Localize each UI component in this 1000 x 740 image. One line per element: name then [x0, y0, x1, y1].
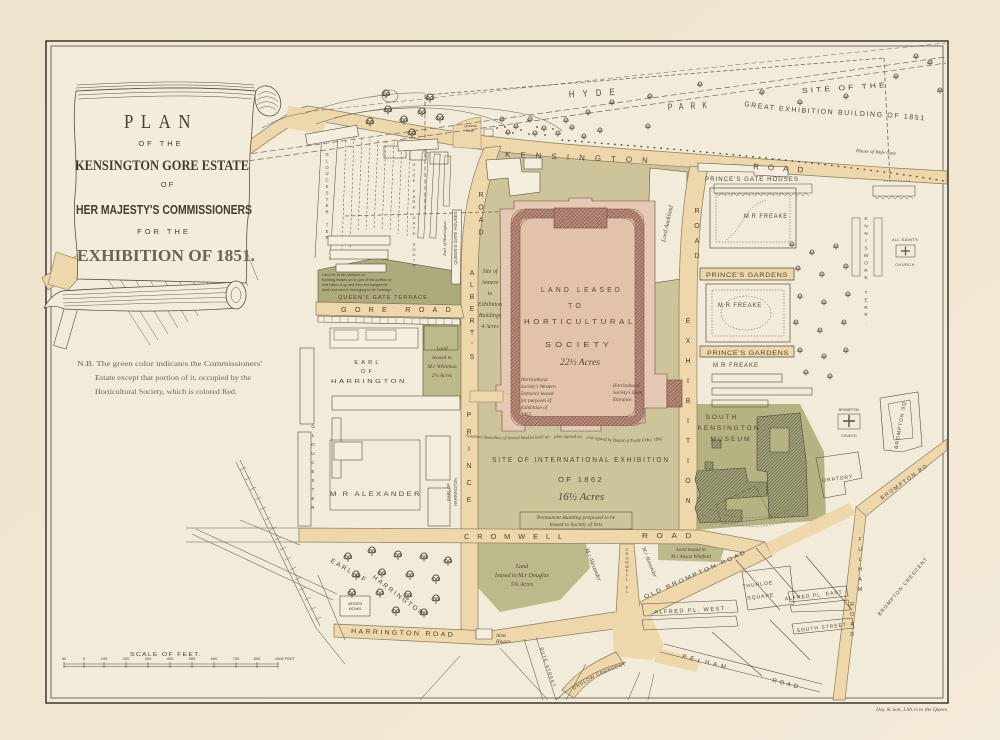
svg-text:PRINCE'S GARDENS: PRINCE'S GARDENS: [706, 273, 788, 279]
svg-text:OF: OF: [361, 369, 375, 375]
svg-text:Land: Land: [515, 564, 529, 570]
svg-text:ROAD: ROAD: [477, 192, 484, 242]
svg-text:SOUTH: SOUTH: [706, 414, 739, 421]
svg-text:Estate except that portion of: Estate except that portion of it, occupi…: [95, 373, 252, 382]
svg-text:M R FREAKE: M R FREAKE: [713, 363, 759, 369]
svg-text:Houses: Houses: [495, 640, 511, 645]
svg-text:PLAN: PLAN: [124, 111, 198, 133]
svg-text:leased to M.r Douglas: leased to M.r Douglas: [495, 573, 549, 579]
svg-text:16½ Acres: 16½ Acres: [558, 491, 604, 503]
svg-text:MESSRS: MESSRS: [348, 602, 363, 606]
svg-text:1000 FEET: 1000 FEET: [275, 656, 296, 661]
svg-text:1862.: 1862.: [521, 413, 532, 418]
svg-text:GLOUCESTER: GLOUCESTER: [310, 424, 315, 514]
svg-text:22½ Acres: 22½ Acres: [560, 357, 600, 368]
svg-text:Horticultural Society, which i: Horticultural Society, which is colored …: [95, 387, 237, 396]
svg-text:LAND LEASED: LAND LEASED: [541, 287, 623, 294]
svg-text:EARL OF: EARL OF: [446, 483, 451, 501]
svg-text:KENSINGTON GORE ESTATE: KENSINGTON GORE ESTATE: [75, 158, 249, 174]
svg-text:HYDE PARK GATE SOUTH: HYDE PARK GATE SOUTH: [412, 162, 417, 268]
svg-text:ROAD: ROAD: [642, 531, 700, 540]
svg-text:QUEEN'S GATE HOUSES: QUEEN'S GATE HOUSES: [453, 211, 458, 264]
svg-text:100: 100: [101, 656, 108, 661]
svg-text:Earl of Harrington.: Earl of Harrington.: [442, 220, 447, 256]
svg-text:800: 800: [254, 656, 261, 661]
svg-text:Land: Land: [435, 346, 448, 352]
svg-text:500: 500: [189, 656, 196, 661]
svg-text:ENNISMORE TERR.: ENNISMORE TERR.: [863, 216, 868, 327]
svg-text:ALL SAINTS: ALL SAINTS: [892, 237, 919, 242]
svg-text:CROMWELL: CROMWELL: [464, 532, 570, 541]
svg-text:CROMWELL PL.: CROMWELL PL.: [625, 548, 629, 598]
svg-text:5¾ Acres: 5¾ Acres: [511, 582, 534, 588]
svg-text:400: 400: [167, 656, 174, 661]
svg-text:50: 50: [62, 656, 67, 661]
svg-text:ALBERT'S: ALBERT'S: [469, 270, 476, 366]
svg-text:OF: OF: [161, 180, 175, 189]
svg-text:M.r Anson Whitford: M.r Anson Whitford: [670, 555, 711, 560]
svg-text:Queens: Queens: [464, 124, 477, 128]
svg-text:Land let to Mr Jackson on: Land let to Mr Jackson on: [322, 273, 365, 277]
svg-text:Exhibition of: Exhibition of: [520, 406, 548, 411]
svg-text:600: 600: [211, 656, 218, 661]
svg-text:2¼ Acres: 2¼ Acres: [432, 373, 452, 379]
svg-text:Society's Western: Society's Western: [521, 385, 556, 390]
svg-text:Entrance.: Entrance.: [612, 398, 633, 403]
svg-text:200: 200: [123, 656, 130, 661]
svg-text:Horticultural: Horticultural: [520, 378, 548, 383]
svg-text:HARRINGTON: HARRINGTON: [331, 379, 407, 385]
svg-text:N.B. The green color indicates: N.B. The green color indicates the Commi…: [77, 359, 263, 368]
svg-text:CHURCH: CHURCH: [841, 434, 857, 438]
svg-text:Annexe: Annexe: [480, 280, 498, 286]
svg-text:FOR THE: FOR THE: [137, 227, 191, 236]
svg-text:HER MAJESTY'S COMMISSIONERS: HER MAJESTY'S COMMISSIONERS: [76, 202, 252, 217]
svg-text:TO: TO: [568, 303, 584, 310]
svg-text:EARL: EARL: [354, 360, 381, 366]
svg-text:CHURCH: CHURCH: [895, 262, 915, 267]
svg-text:Horticultural: Horticultural: [612, 384, 640, 389]
svg-text:Permanent Building proposed to: Permanent Building proposed to be: [536, 515, 616, 521]
svg-text:M R ALEXANDER: M R ALEXANDER: [330, 491, 422, 498]
svg-text:Society's Main: Society's Main: [613, 391, 643, 396]
svg-text:leased to Society of Arts: leased to Society of Arts: [549, 521, 602, 528]
svg-text:HARRINGTON: HARRINGTON: [453, 478, 458, 506]
svg-text:FULHAM: FULHAM: [857, 537, 863, 597]
svg-text:ROAD: ROAD: [693, 208, 700, 268]
svg-text:HORTICULTURAL: HORTICULTURAL: [524, 319, 636, 326]
svg-text:EXHIBITION OF 1851.: EXHIBITION OF 1851.: [77, 246, 255, 265]
svg-text:4 Acres: 4 Acres: [481, 323, 499, 330]
svg-text:M R FREAKE: M R FREAKE: [718, 303, 762, 309]
svg-text:M.r Whitman: M.r Whitman: [426, 364, 457, 370]
svg-text:MONKS: MONKS: [349, 607, 362, 611]
svg-text:Land leased to: Land leased to: [675, 548, 706, 553]
svg-text:Exhibition: Exhibition: [477, 302, 502, 308]
svg-text:for purposes of: for purposes of: [521, 399, 552, 404]
svg-text:SITE OF INTERNATIONAL EXHIBITI: SITE OF INTERNATIONAL EXHIBITION: [492, 457, 670, 464]
svg-text:Alms: Alms: [495, 634, 506, 639]
svg-text:OF THE: OF THE: [138, 139, 183, 148]
svg-text:PRINCE: PRINCE: [466, 412, 473, 514]
svg-text:700: 700: [233, 656, 240, 661]
svg-text:land reserved & belonging to M: land reserved & belonging to Mr Harridge: [322, 288, 391, 292]
svg-text:PRINCE'S GATE HOUSES: PRINCE'S GATE HOUSES: [705, 177, 799, 183]
svg-text:Site of: Site of: [483, 268, 499, 275]
svg-text:OF 1862: OF 1862: [558, 477, 604, 484]
svg-text:Day & Son, Lith.rs to the Quee: Day & Son, Lith.rs to the Queen: [875, 707, 947, 713]
svg-text:300: 300: [145, 656, 152, 661]
svg-text:ROAD: ROAD: [849, 602, 855, 642]
svg-text:SOCIETY: SOCIETY: [545, 342, 613, 349]
svg-text:that taken it up and then exch: that taken it up and then exchanged for: [322, 283, 389, 287]
svg-text:GORE ROAD: GORE ROAD: [341, 307, 459, 314]
svg-text:PRINCE'S GARDENS: PRINCE'S GARDENS: [707, 351, 789, 357]
svg-text:Gate: Gate: [466, 129, 474, 133]
svg-text:BROMPTON: BROMPTON: [839, 408, 860, 412]
svg-text:M R FREAKE: M R FREAKE: [744, 214, 788, 220]
svg-text:to: to: [488, 291, 493, 297]
svg-text:leased to: leased to: [432, 355, 452, 361]
svg-text:QUEEN'S GATE TERRACE: QUEEN'S GATE TERRACE: [338, 295, 428, 301]
svg-text:KENSINGTON: KENSINGTON: [698, 425, 761, 432]
svg-text:Buildings: Buildings: [479, 313, 502, 319]
svg-text:GLOUCESTER TER.: GLOUCESTER TER.: [324, 152, 329, 248]
svg-text:EXHIBITION: EXHIBITION: [684, 318, 691, 518]
svg-text:Entrance leased: Entrance leased: [520, 392, 554, 397]
svg-text:building leases on in part of: building leases on in part of the portio…: [322, 278, 392, 282]
svg-text:MUSEUM: MUSEUM: [711, 436, 752, 443]
